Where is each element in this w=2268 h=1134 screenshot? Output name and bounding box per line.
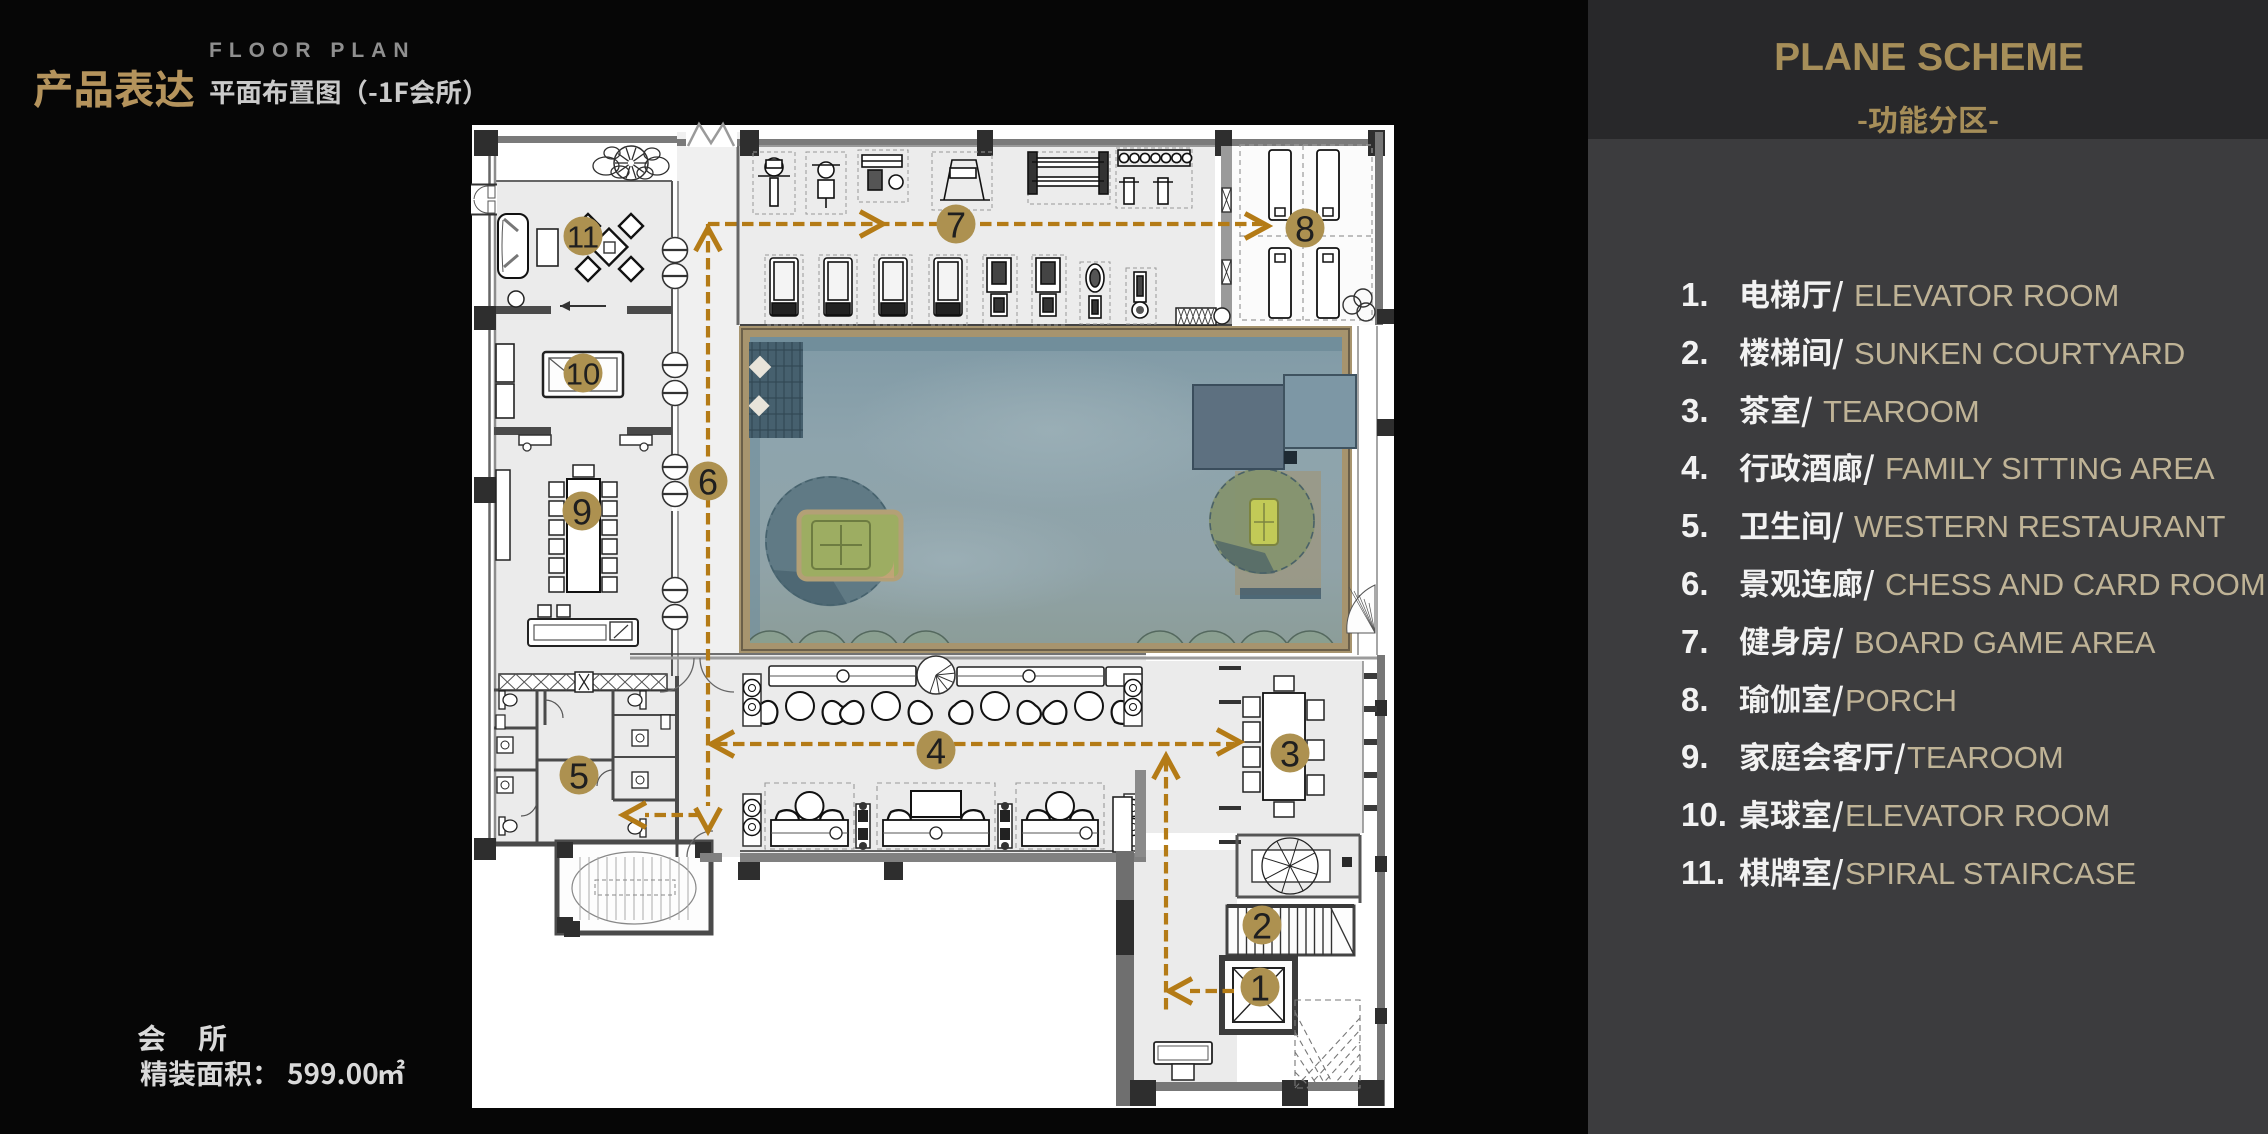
svg-text:SUNKEN COURTYARD: SUNKEN COURTYARD bbox=[1854, 336, 2185, 371]
svg-text:4: 4 bbox=[926, 731, 946, 772]
svg-text:3.: 3. bbox=[1681, 392, 1709, 429]
svg-text:9: 9 bbox=[572, 492, 592, 533]
svg-text:BOARD GAME AREA: BOARD GAME AREA bbox=[1854, 625, 2156, 660]
svg-text:11.: 11. bbox=[1681, 854, 1725, 891]
svg-text:2: 2 bbox=[1252, 906, 1272, 947]
svg-text:1.: 1. bbox=[1681, 276, 1709, 313]
svg-text:6: 6 bbox=[698, 462, 718, 503]
svg-text:ELEVATOR ROOM: ELEVATOR ROOM bbox=[1845, 798, 2110, 833]
svg-text:SPIRAL STAIRCASE: SPIRAL STAIRCASE bbox=[1845, 856, 2136, 891]
svg-text:3: 3 bbox=[1280, 734, 1300, 775]
svg-text:1: 1 bbox=[1250, 968, 1270, 1009]
svg-text:PORCH: PORCH bbox=[1845, 683, 1957, 718]
svg-text:FAMILY SITTING AREA: FAMILY SITTING AREA bbox=[1885, 451, 2215, 486]
svg-text:5: 5 bbox=[569, 756, 589, 797]
svg-text:TEAROOM: TEAROOM bbox=[1907, 740, 2064, 775]
svg-text:5.: 5. bbox=[1681, 507, 1709, 544]
svg-text:ELEVATOR ROOM: ELEVATOR ROOM bbox=[1854, 278, 2119, 313]
svg-text:8.: 8. bbox=[1681, 681, 1709, 718]
svg-text:WESTERN RESTAURANT: WESTERN RESTAURANT bbox=[1854, 509, 2226, 544]
svg-text:8: 8 bbox=[1295, 209, 1315, 250]
svg-text:4.: 4. bbox=[1681, 449, 1709, 486]
svg-text:10: 10 bbox=[566, 357, 600, 392]
svg-text:TEAROOM: TEAROOM bbox=[1823, 394, 1980, 429]
svg-text:10.: 10. bbox=[1681, 796, 1727, 833]
svg-text:7: 7 bbox=[946, 205, 966, 246]
svg-text:PLANE SCHEME: PLANE SCHEME bbox=[1774, 36, 2084, 79]
svg-text:CHESS AND CARD ROOM: CHESS AND CARD ROOM bbox=[1885, 567, 2266, 602]
svg-text:2.: 2. bbox=[1681, 334, 1709, 371]
svg-text:11: 11 bbox=[567, 220, 599, 255]
svg-text:6.: 6. bbox=[1681, 565, 1709, 602]
svg-text:7.: 7. bbox=[1681, 623, 1709, 660]
svg-text:9.: 9. bbox=[1681, 738, 1709, 775]
svg-text:FLOOR PLAN: FLOOR PLAN bbox=[209, 39, 416, 62]
